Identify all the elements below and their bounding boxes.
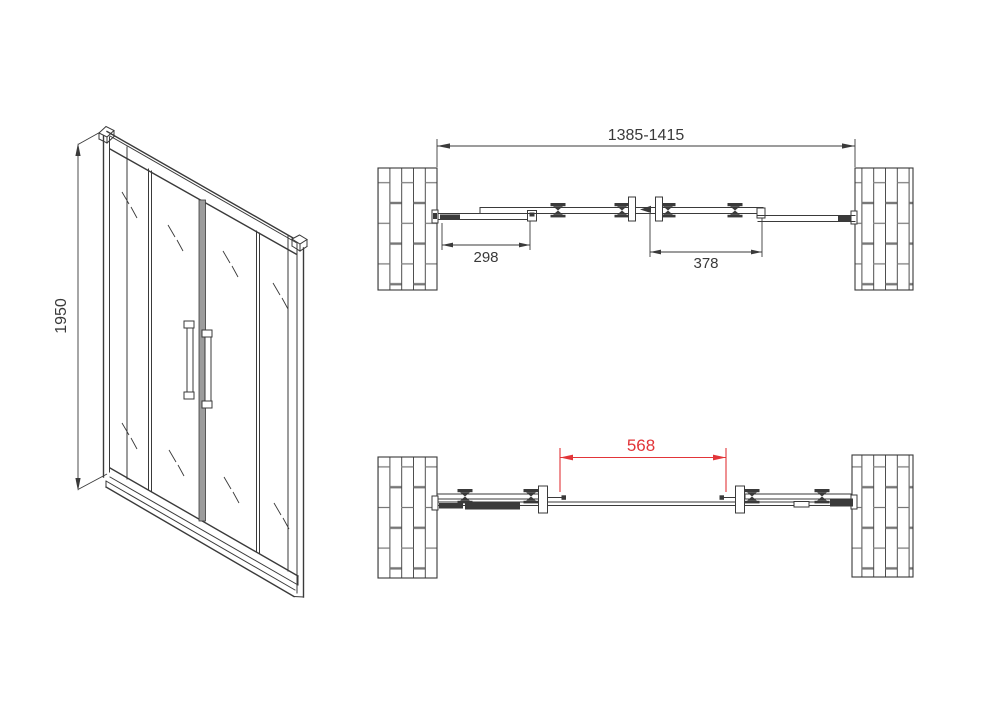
overall-width-label: 1385-1415: [608, 127, 685, 144]
left-section-label: 298: [473, 249, 498, 266]
wall-profile-right: [851, 211, 857, 224]
drawing-page: 1950: [0, 0, 1000, 707]
right-section-label: 378: [693, 255, 718, 272]
wall-right-closed: [855, 168, 913, 290]
handle-top-view: [736, 486, 745, 513]
wall-right-open: [852, 455, 913, 577]
wall-left-closed: [378, 168, 437, 290]
opening-label: 568: [627, 436, 655, 455]
bracket-left: [440, 215, 460, 220]
handle-top-view-right: [656, 197, 663, 221]
bracket-left: [439, 503, 463, 509]
bracket-right: [838, 216, 851, 222]
stacked-door-edge: [465, 502, 520, 510]
handle-top-view: [539, 486, 548, 513]
bracket-right: [830, 499, 853, 507]
panel-connector-right: [757, 208, 765, 218]
wall-profile-left: [432, 496, 438, 510]
page-background: [0, 0, 1000, 707]
height-dimension-label: 1950: [53, 298, 70, 334]
handle-top-view-left: [629, 197, 636, 221]
wall-left-open: [378, 457, 437, 578]
technical-drawing-canvas: 1950: [0, 0, 1000, 707]
stacked-door-edge: [794, 502, 809, 508]
